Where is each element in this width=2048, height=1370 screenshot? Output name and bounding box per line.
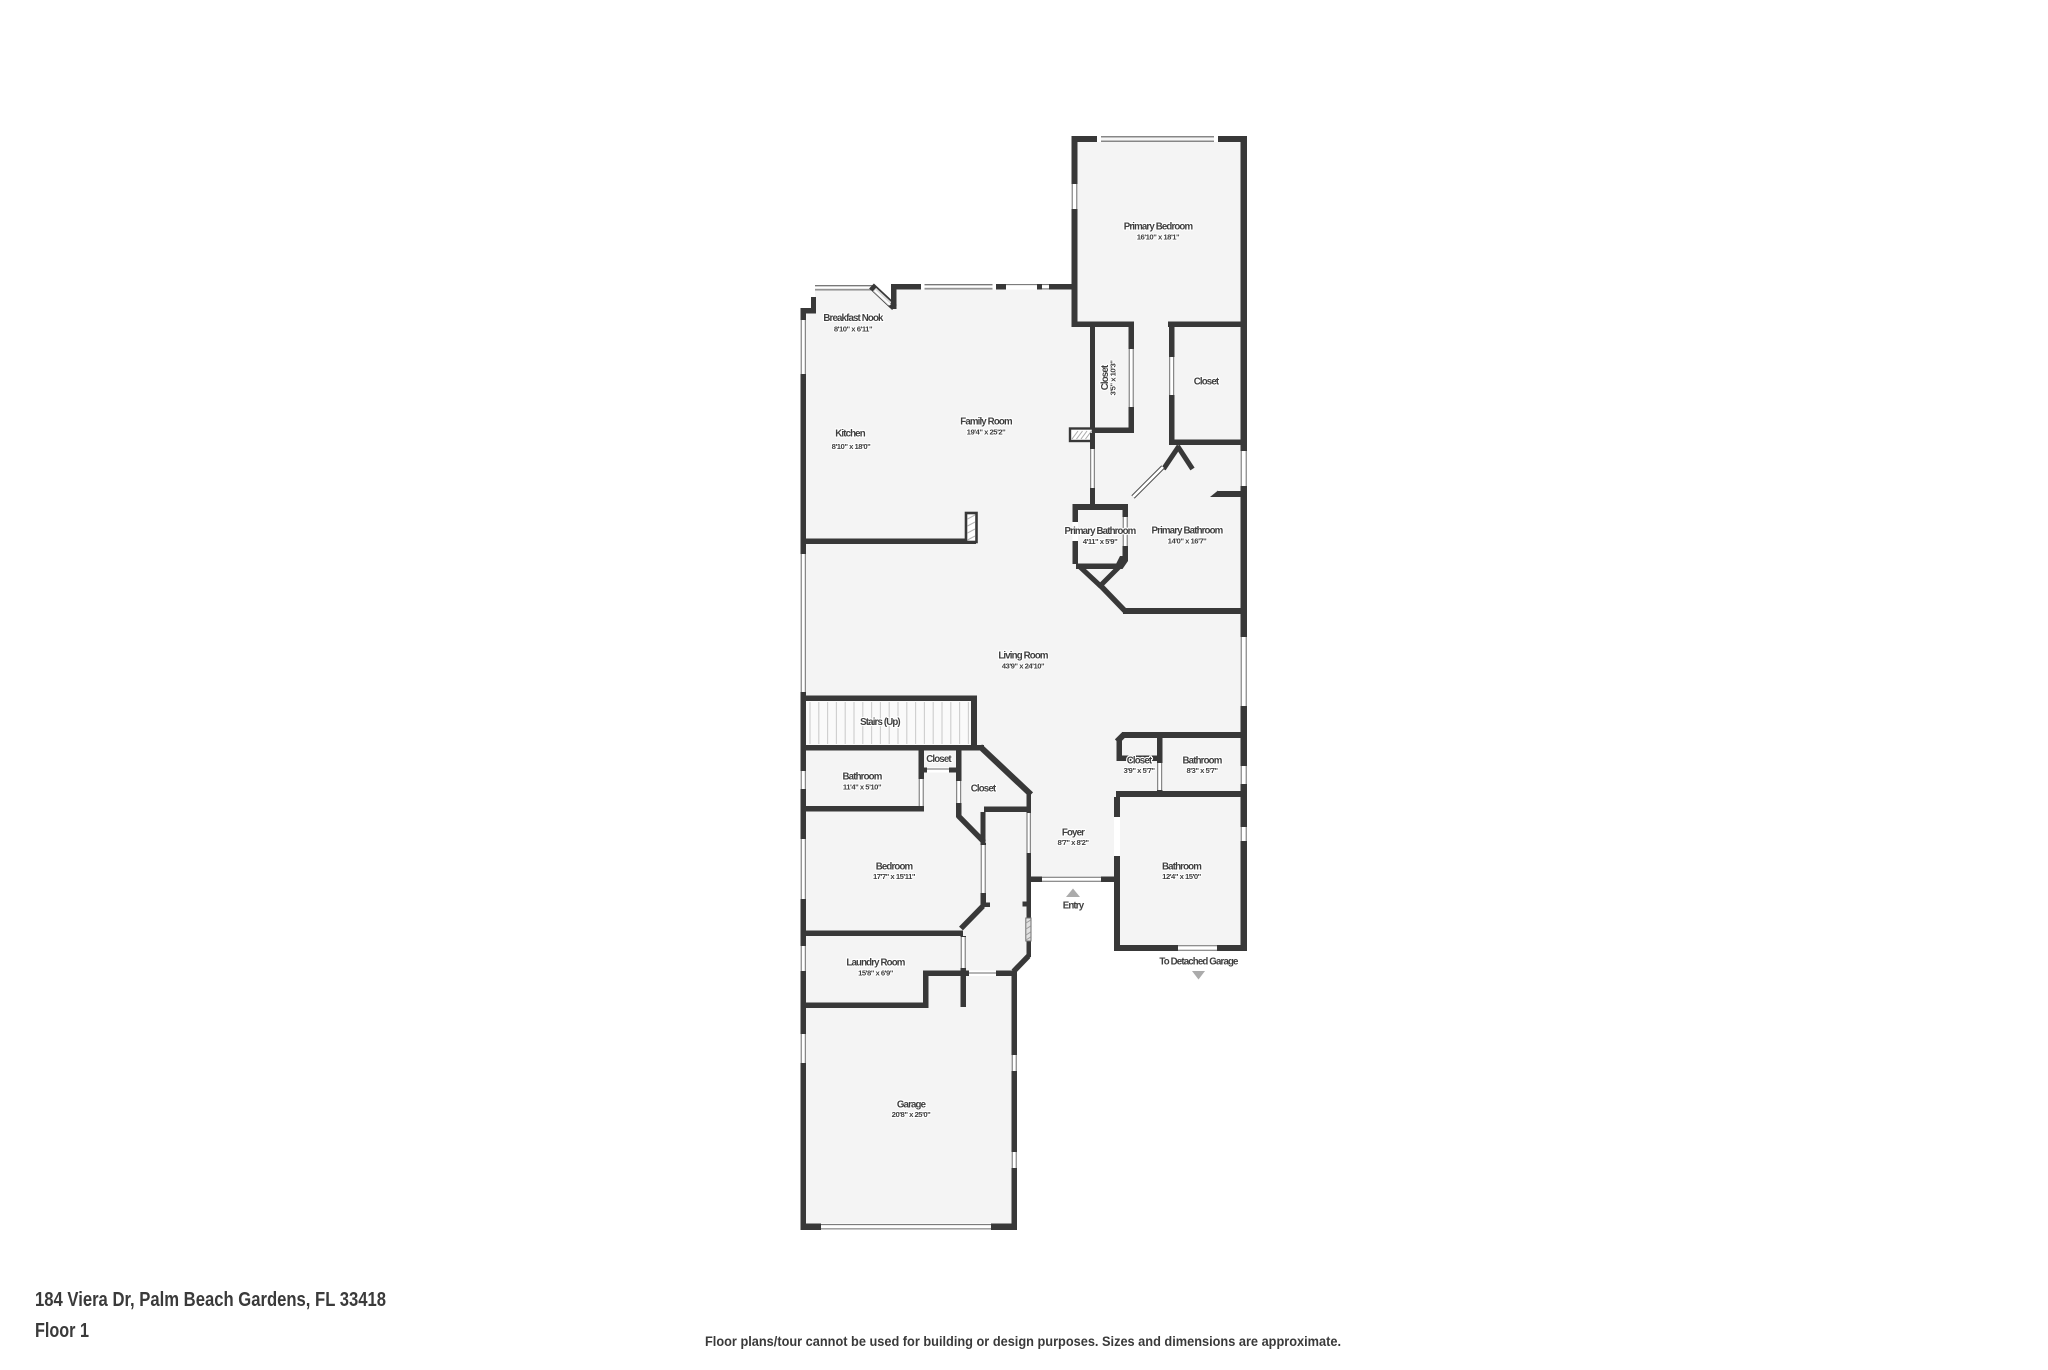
svg-text:8'7" x 8'2": 8'7" x 8'2" (1057, 838, 1089, 847)
svg-text:Primary Bathroom: Primary Bathroom (1065, 526, 1137, 537)
svg-text:8'10" x 18'0": 8'10" x 18'0" (832, 442, 872, 451)
svg-text:Closet: Closet (971, 784, 997, 795)
svg-text:Foyer: Foyer (1062, 828, 1085, 839)
svg-text:Primary Bedroom: Primary Bedroom (1124, 222, 1194, 233)
svg-text:16'10" x 18'1": 16'10" x 18'1" (1137, 233, 1180, 242)
svg-text:Floor 1: Floor 1 (35, 1320, 89, 1342)
svg-text:Closet: Closet (1127, 756, 1153, 767)
svg-text:14'0" x 16'7": 14'0" x 16'7" (1168, 537, 1208, 546)
svg-text:Bathroom: Bathroom (1162, 862, 1202, 873)
svg-text:Garage: Garage (897, 1100, 927, 1111)
svg-text:Closet: Closet (1194, 377, 1220, 388)
svg-text:To Detached Garage: To Detached Garage (1159, 957, 1239, 968)
svg-text:184 Viera Dr, Palm Beach Garde: 184 Viera Dr, Palm Beach Gardens, FL 334… (35, 1289, 386, 1311)
svg-text:Laundry Room: Laundry Room (846, 958, 905, 969)
svg-text:12'4" x 15'0": 12'4" x 15'0" (1162, 872, 1202, 881)
svg-text:Bathroom: Bathroom (843, 772, 883, 783)
svg-text:43'9" x 24'10": 43'9" x 24'10" (1002, 662, 1045, 671)
svg-text:Stairs (Up): Stairs (Up) (860, 717, 900, 728)
svg-text:4'11" x 5'9": 4'11" x 5'9" (1083, 537, 1118, 546)
svg-text:Living Room: Living Room (998, 651, 1049, 662)
svg-text:8'3" x 5'7": 8'3" x 5'7" (1186, 766, 1218, 775)
svg-text:Breakfast Nook: Breakfast Nook (823, 313, 884, 324)
svg-text:3'5" x 10'3": 3'5" x 10'3" (1109, 360, 1118, 396)
svg-text:Closet: Closet (926, 754, 952, 765)
svg-text:8'10" x 6'11": 8'10" x 6'11" (834, 325, 873, 334)
svg-text:Family Room: Family Room (960, 417, 1013, 428)
svg-text:Floor plans/tour cannot be use: Floor plans/tour cannot be used for buil… (705, 1333, 1341, 1349)
svg-text:20'8" x 25'0": 20'8" x 25'0" (892, 1110, 932, 1119)
svg-text:Primary Bathroom: Primary Bathroom (1152, 526, 1224, 537)
svg-text:11'4" x 5'10": 11'4" x 5'10" (843, 783, 882, 792)
svg-text:17'7" x 15'11": 17'7" x 15'11" (873, 872, 916, 881)
svg-text:19'4" x 25'2": 19'4" x 25'2" (967, 428, 1007, 437)
svg-text:15'8" x 6'9": 15'8" x 6'9" (858, 969, 894, 978)
svg-text:3'9" x 5'7": 3'9" x 5'7" (1123, 766, 1155, 775)
svg-text:Bathroom: Bathroom (1183, 756, 1223, 767)
svg-text:Kitchen: Kitchen (835, 429, 866, 440)
svg-text:Entry: Entry (1063, 901, 1085, 912)
svg-text:Bedroom: Bedroom (876, 862, 914, 873)
